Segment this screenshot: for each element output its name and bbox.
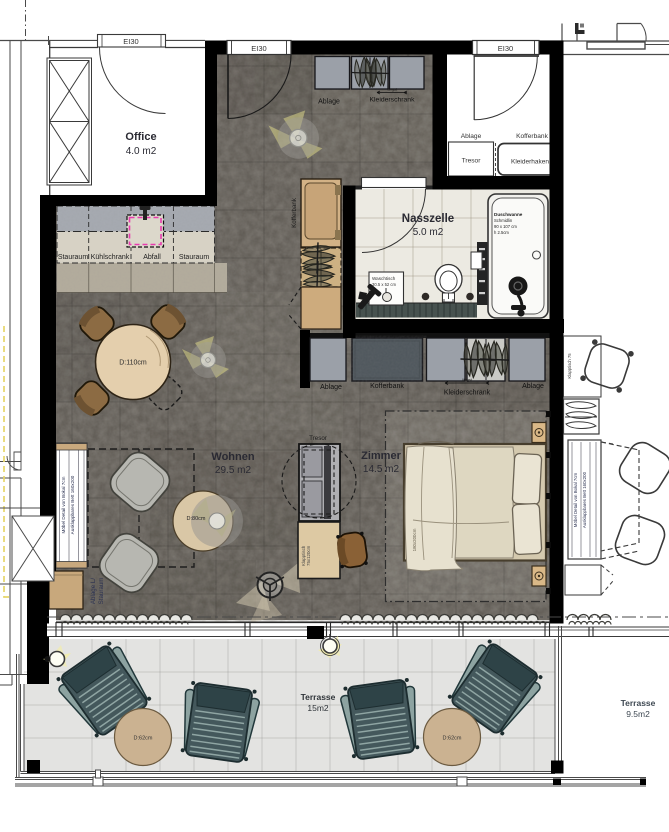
svg-text:D:110cm: D:110cm — [119, 360, 147, 367]
svg-text:Terrasse: Terrasse — [621, 698, 656, 708]
svg-text:längst: längst — [462, 378, 472, 382]
svg-text:Schmidlin: Schmidlin — [494, 218, 513, 223]
svg-text:Ablage L/: Ablage L/ — [90, 578, 97, 604]
svg-text:Tresor: Tresor — [462, 158, 482, 165]
svg-text:Kleiderhaken: Kleiderhaken — [511, 159, 549, 166]
svg-text:Möbel Detail von Bokal 7cm: Möbel Detail von Bokal 7cm — [61, 476, 66, 533]
svg-text:5.0 m2: 5.0 m2 — [413, 227, 444, 238]
svg-text:Kofferbank: Kofferbank — [291, 197, 298, 228]
svg-text:Wohnen: Wohnen — [211, 451, 254, 463]
svg-text:Waschtisch: Waschtisch — [372, 276, 396, 281]
svg-text:180x200cm: 180x200cm — [412, 528, 417, 551]
svg-text:Ablage: Ablage — [522, 383, 544, 390]
svg-text:EI30: EI30 — [123, 37, 138, 46]
svg-text:Kühlschrank: Kühlschrank — [91, 254, 130, 261]
svg-text:Office: Office — [125, 131, 156, 143]
svg-text:4.0 m2: 4.0 m2 — [126, 146, 157, 157]
svg-text:Klapptisch 75: Klapptisch 75 — [567, 353, 572, 379]
svg-text:Abfall: Abfall — [143, 254, 161, 261]
svg-text:D:62cm: D:62cm — [134, 736, 153, 742]
svg-text:30.5 x 52 cm: 30.5 x 52 cm — [372, 282, 396, 287]
svg-text:EI30: EI30 — [498, 44, 513, 53]
svg-text:Ausklappbares Bett 160x200: Ausklappbares Bett 160x200 — [70, 475, 75, 534]
svg-text:D:62cm: D:62cm — [443, 736, 462, 742]
svg-text:Kofferbank: Kofferbank — [516, 133, 548, 140]
svg-text:EI30: EI30 — [251, 44, 266, 53]
svg-text:Duschwanne: Duschwanne — [494, 212, 523, 217]
svg-text:75x120cm: 75x120cm — [306, 545, 311, 566]
svg-text:Kofferbank: Kofferbank — [370, 383, 404, 390]
svg-text:Nasszelle: Nasszelle — [402, 213, 454, 225]
svg-text:Ablage: Ablage — [320, 384, 342, 391]
svg-text:Tresor: Tresor — [309, 435, 327, 442]
svg-text:längst: längst — [387, 88, 397, 92]
svg-text:90 x 107 cm: 90 x 107 cm — [494, 224, 517, 229]
svg-text:Ausklappbares Bett 160x200: Ausklappbares Bett 160x200 — [582, 471, 587, 528]
svg-text:D:80cm: D:80cm — [187, 516, 206, 522]
svg-text:Stauraum: Stauraum — [98, 578, 105, 605]
svg-text:14.5 m2: 14.5 m2 — [363, 464, 400, 475]
svg-text:Stauraum: Stauraum — [179, 254, 210, 261]
svg-text:Ablage: Ablage — [318, 99, 340, 106]
svg-text:Zimmer: Zimmer — [361, 450, 401, 462]
svg-text:Möbel Detail von Bokal 7cm: Möbel Detail von Bokal 7cm — [573, 472, 578, 527]
svg-text:15m2: 15m2 — [307, 703, 329, 713]
svg-text:29.5 m2: 29.5 m2 — [215, 465, 252, 476]
svg-text:Kleiderschrank: Kleiderschrank — [444, 390, 491, 397]
svg-text:Stauraum: Stauraum — [58, 254, 89, 261]
svg-text:h 2.5cm: h 2.5cm — [494, 230, 509, 235]
svg-text:Kleiderschrank: Kleiderschrank — [370, 97, 416, 104]
svg-text:Ablage: Ablage — [461, 133, 482, 140]
svg-text:9.5m2: 9.5m2 — [626, 709, 650, 719]
svg-text:Terrasse: Terrasse — [301, 692, 336, 702]
